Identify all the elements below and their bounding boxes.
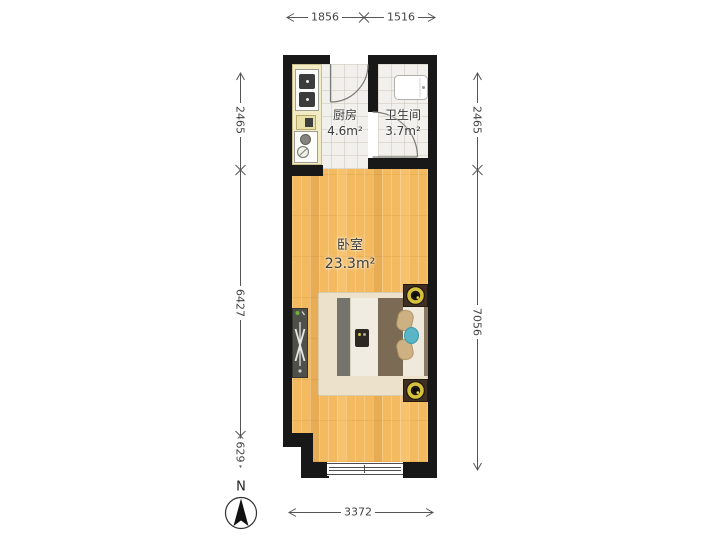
wall-kitchen-bath-divider bbox=[368, 64, 378, 112]
nightstand-top bbox=[403, 284, 428, 307]
floor-plan-canvas: 厨房 4.6m² 卫生间 3.7m² 卧室 23.3m² 1856 1516 2… bbox=[0, 0, 720, 543]
bed-blanket-brown bbox=[378, 298, 403, 376]
north-compass bbox=[226, 498, 257, 529]
exterior-mask bbox=[283, 447, 301, 478]
bedroom-area: 23.3m² bbox=[310, 255, 390, 273]
kitchen-appliance bbox=[296, 115, 316, 130]
kitchen-label: 厨房 4.6m² bbox=[320, 108, 370, 139]
stove-burner-icon bbox=[299, 74, 315, 89]
bathroom-name: 卫生间 bbox=[375, 108, 431, 124]
dim-left-1: 2465 bbox=[233, 103, 248, 137]
dim-right-1: 2465 bbox=[470, 103, 485, 137]
bedroom-label: 卧室 23.3m² bbox=[310, 238, 390, 273]
dim-top-1: 1856 bbox=[308, 10, 342, 25]
nightstand-bottom bbox=[403, 379, 428, 402]
dim-bottom-1: 3372 bbox=[341, 505, 375, 520]
dim-right-2: 7056 bbox=[470, 305, 485, 339]
bed-footboard bbox=[337, 298, 350, 376]
bathroom-label: 卫生间 3.7m² bbox=[375, 108, 431, 139]
radiator bbox=[292, 308, 308, 378]
wall-step-side bbox=[301, 433, 313, 478]
stove-burner-icon bbox=[299, 92, 315, 107]
wall-kitchen-bottom bbox=[283, 165, 323, 176]
remote-on-bed bbox=[355, 329, 369, 347]
wall-bottom-right bbox=[403, 462, 437, 478]
window-opening bbox=[327, 462, 403, 476]
dim-left-3: 629 bbox=[233, 439, 248, 466]
bedroom-name: 卧室 bbox=[310, 238, 390, 255]
kitchen-area: 4.6m² bbox=[320, 124, 370, 140]
wall-bathroom-bottom bbox=[368, 158, 437, 169]
dim-left-2: 6427 bbox=[233, 286, 248, 320]
bathroom-area: 3.7m² bbox=[375, 124, 431, 140]
north-needle-icon bbox=[234, 499, 249, 527]
north-label: N bbox=[236, 480, 246, 495]
teal-cushion bbox=[404, 327, 419, 344]
kitchen-sink bbox=[294, 131, 318, 163]
wall-top-right bbox=[368, 55, 437, 64]
kitchen-name: 厨房 bbox=[320, 108, 370, 124]
dim-top-2: 1516 bbox=[384, 10, 418, 25]
wall-left bbox=[283, 55, 292, 447]
